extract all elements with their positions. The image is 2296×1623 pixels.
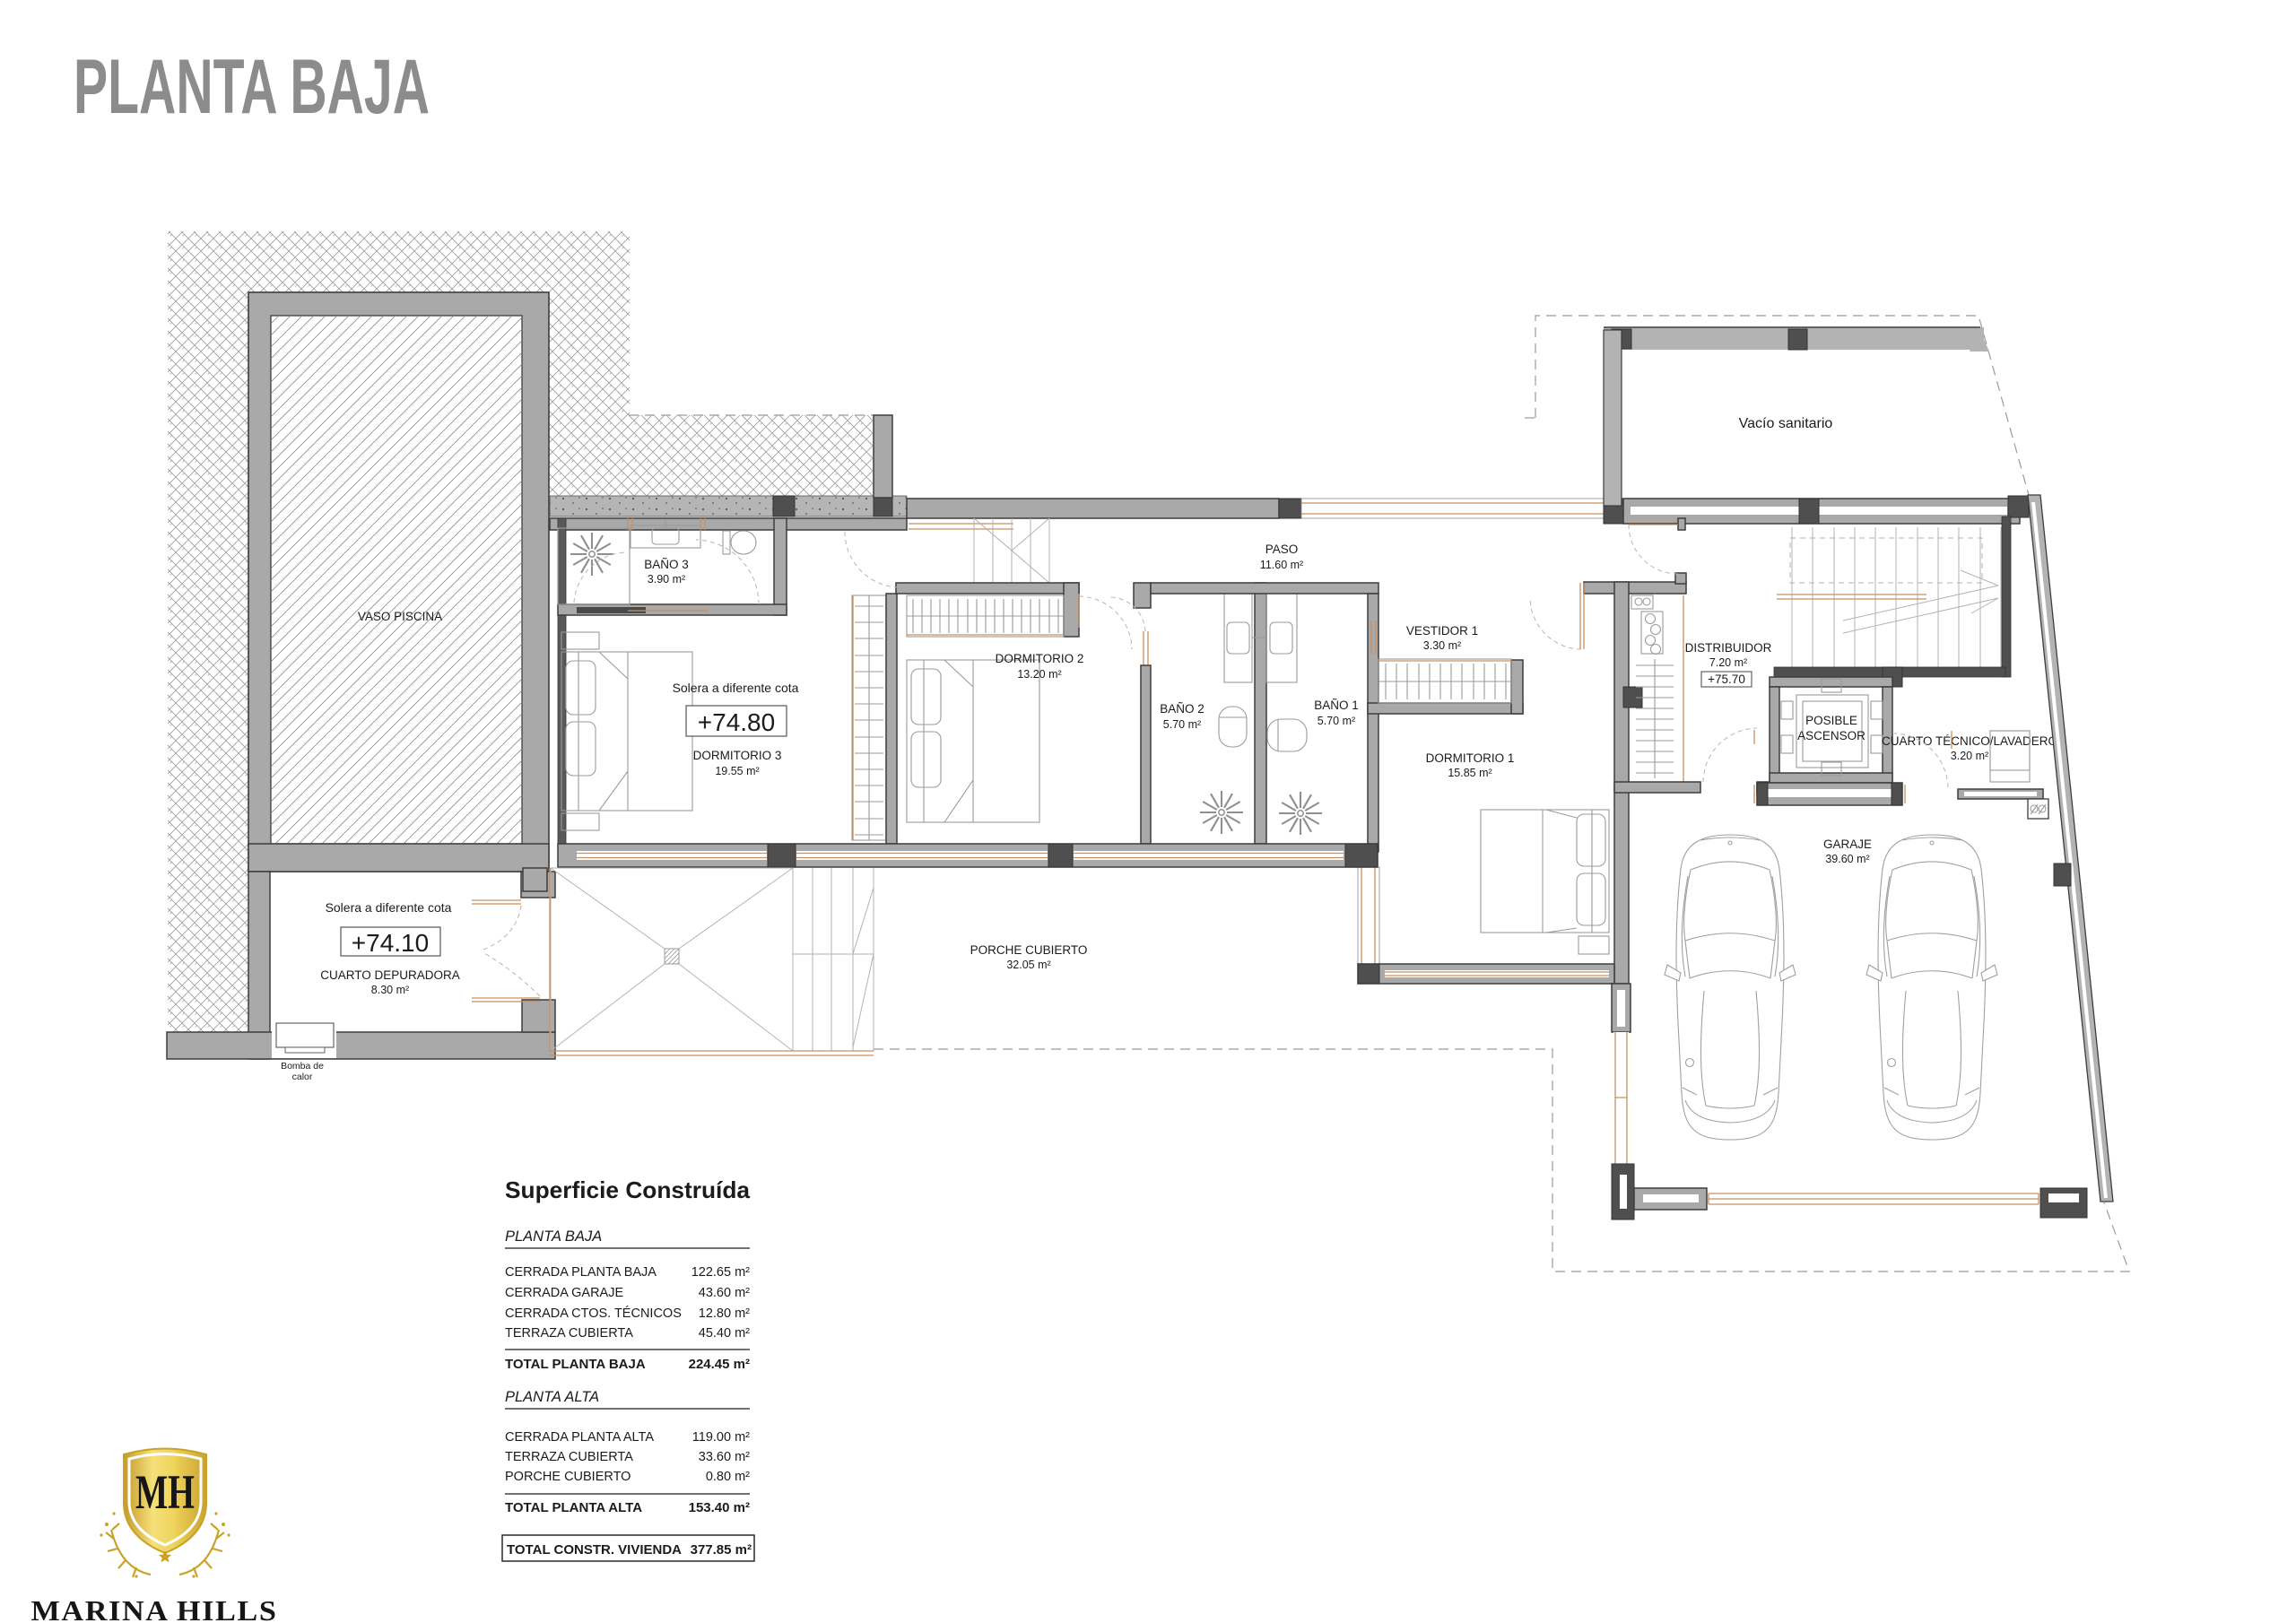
svg-text:CUARTO DEPURADORA: CUARTO DEPURADORA — [320, 968, 460, 982]
svg-text:153.40 m²: 153.40 m² — [689, 1500, 750, 1515]
svg-text:122.65 m²: 122.65 m² — [691, 1265, 750, 1280]
svg-text:DORMITORIO 1: DORMITORIO 1 — [1426, 751, 1515, 765]
svg-text:224.45 m²: 224.45 m² — [689, 1357, 750, 1372]
svg-text:DISTRIBUIDOR: DISTRIBUIDOR — [1685, 641, 1772, 655]
svg-text:+74.10: +74.10 — [352, 929, 429, 957]
svg-text:VESTIDOR 1: VESTIDOR 1 — [1406, 624, 1478, 638]
svg-text:Solera a diferente cota: Solera a diferente cota — [326, 900, 452, 915]
svg-text:15.85 m²: 15.85 m² — [1448, 767, 1492, 779]
svg-text:PLANTA ALTA: PLANTA ALTA — [505, 1389, 599, 1405]
svg-text:5.70 m²: 5.70 m² — [1318, 715, 1355, 727]
svg-text:BAÑO 1: BAÑO 1 — [1314, 699, 1359, 712]
svg-text:ASCENSOR: ASCENSOR — [1797, 729, 1865, 742]
svg-text:11.60 m²: 11.60 m² — [1260, 559, 1303, 571]
svg-text:MH: MH — [135, 1465, 195, 1519]
svg-text:7.20 m²: 7.20 m² — [1709, 656, 1747, 669]
svg-text:Bomba de: Bomba de — [281, 1061, 324, 1072]
svg-text:5.70 m²: 5.70 m² — [1163, 718, 1201, 731]
svg-text:12.80 m²: 12.80 m² — [699, 1306, 750, 1321]
svg-text:PLANTA BAJA: PLANTA BAJA — [74, 44, 430, 130]
svg-text:+75.70: +75.70 — [1708, 673, 1745, 686]
svg-text:Solera a diferente cota: Solera a diferente cota — [673, 681, 799, 695]
svg-text:TOTAL PLANTA BAJA: TOTAL PLANTA BAJA — [505, 1357, 646, 1372]
svg-text:119.00 m²: 119.00 m² — [692, 1430, 750, 1445]
svg-text:TERRAZA CUBIERTA: TERRAZA CUBIERTA — [505, 1326, 633, 1341]
svg-text:MARINA HILLS: MARINA HILLS — [31, 1594, 278, 1623]
svg-text:CERRADA GARAJE: CERRADA GARAJE — [505, 1286, 623, 1300]
svg-text:13.20 m²: 13.20 m² — [1017, 668, 1061, 681]
svg-text:33.60 m²: 33.60 m² — [699, 1450, 750, 1464]
svg-text:19.55 m²: 19.55 m² — [715, 765, 759, 777]
svg-text:3.90 m²: 3.90 m² — [648, 573, 685, 586]
svg-text:PLANTA BAJA: PLANTA BAJA — [505, 1228, 602, 1245]
svg-text:Superficie Construída: Superficie Construída — [505, 1176, 751, 1203]
svg-text:CUARTO TÉCNICO/LAVADERO: CUARTO TÉCNICO/LAVADERO — [1882, 734, 2057, 748]
svg-text:8.30 m²: 8.30 m² — [371, 984, 409, 996]
svg-text:3.30 m²: 3.30 m² — [1423, 639, 1461, 652]
svg-text:CERRADA PLANTA ALTA: CERRADA PLANTA ALTA — [505, 1430, 654, 1445]
svg-text:VASO PISCINA: VASO PISCINA — [358, 610, 442, 623]
svg-text:32.05 m²: 32.05 m² — [1006, 959, 1050, 971]
svg-text:TERRAZA CUBIERTA: TERRAZA CUBIERTA — [505, 1450, 633, 1464]
svg-text:3.20 m²: 3.20 m² — [1951, 750, 1988, 762]
svg-text:DORMITORIO 3: DORMITORIO 3 — [693, 749, 782, 762]
svg-text:GARAJE: GARAJE — [1823, 838, 1872, 851]
svg-text:+74.80: +74.80 — [698, 708, 775, 736]
svg-text:TOTAL PLANTA ALTA: TOTAL PLANTA ALTA — [505, 1500, 642, 1515]
svg-text:DORMITORIO 2: DORMITORIO 2 — [996, 652, 1084, 665]
svg-text:PORCHE CUBIERTO: PORCHE CUBIERTO — [505, 1470, 631, 1484]
svg-text:45.40 m²: 45.40 m² — [699, 1326, 750, 1341]
svg-text:PORCHE CUBIERTO: PORCHE CUBIERTO — [970, 943, 1088, 957]
svg-text:calor: calor — [292, 1072, 313, 1082]
svg-text:BAÑO 2: BAÑO 2 — [1160, 702, 1205, 716]
svg-text:43.60 m²: 43.60 m² — [699, 1286, 750, 1300]
svg-text:TOTAL CONSTR. VIVIENDA: TOTAL CONSTR. VIVIENDA — [507, 1542, 682, 1558]
svg-text:Vacío sanitario: Vacío sanitario — [1739, 416, 1833, 431]
svg-text:0.80 m²: 0.80 m² — [706, 1470, 750, 1484]
svg-text:39.60 m²: 39.60 m² — [1825, 853, 1869, 865]
svg-text:PASO: PASO — [1265, 542, 1299, 556]
svg-text:CERRADA CTOS. TÉCNICOS: CERRADA CTOS. TÉCNICOS — [505, 1306, 682, 1321]
svg-text:POSIBLE: POSIBLE — [1805, 714, 1857, 727]
svg-text:BAÑO 3: BAÑO 3 — [644, 558, 689, 571]
svg-text:377.85 m²: 377.85 m² — [691, 1542, 752, 1558]
svg-text:CERRADA PLANTA BAJA: CERRADA PLANTA BAJA — [505, 1265, 657, 1280]
